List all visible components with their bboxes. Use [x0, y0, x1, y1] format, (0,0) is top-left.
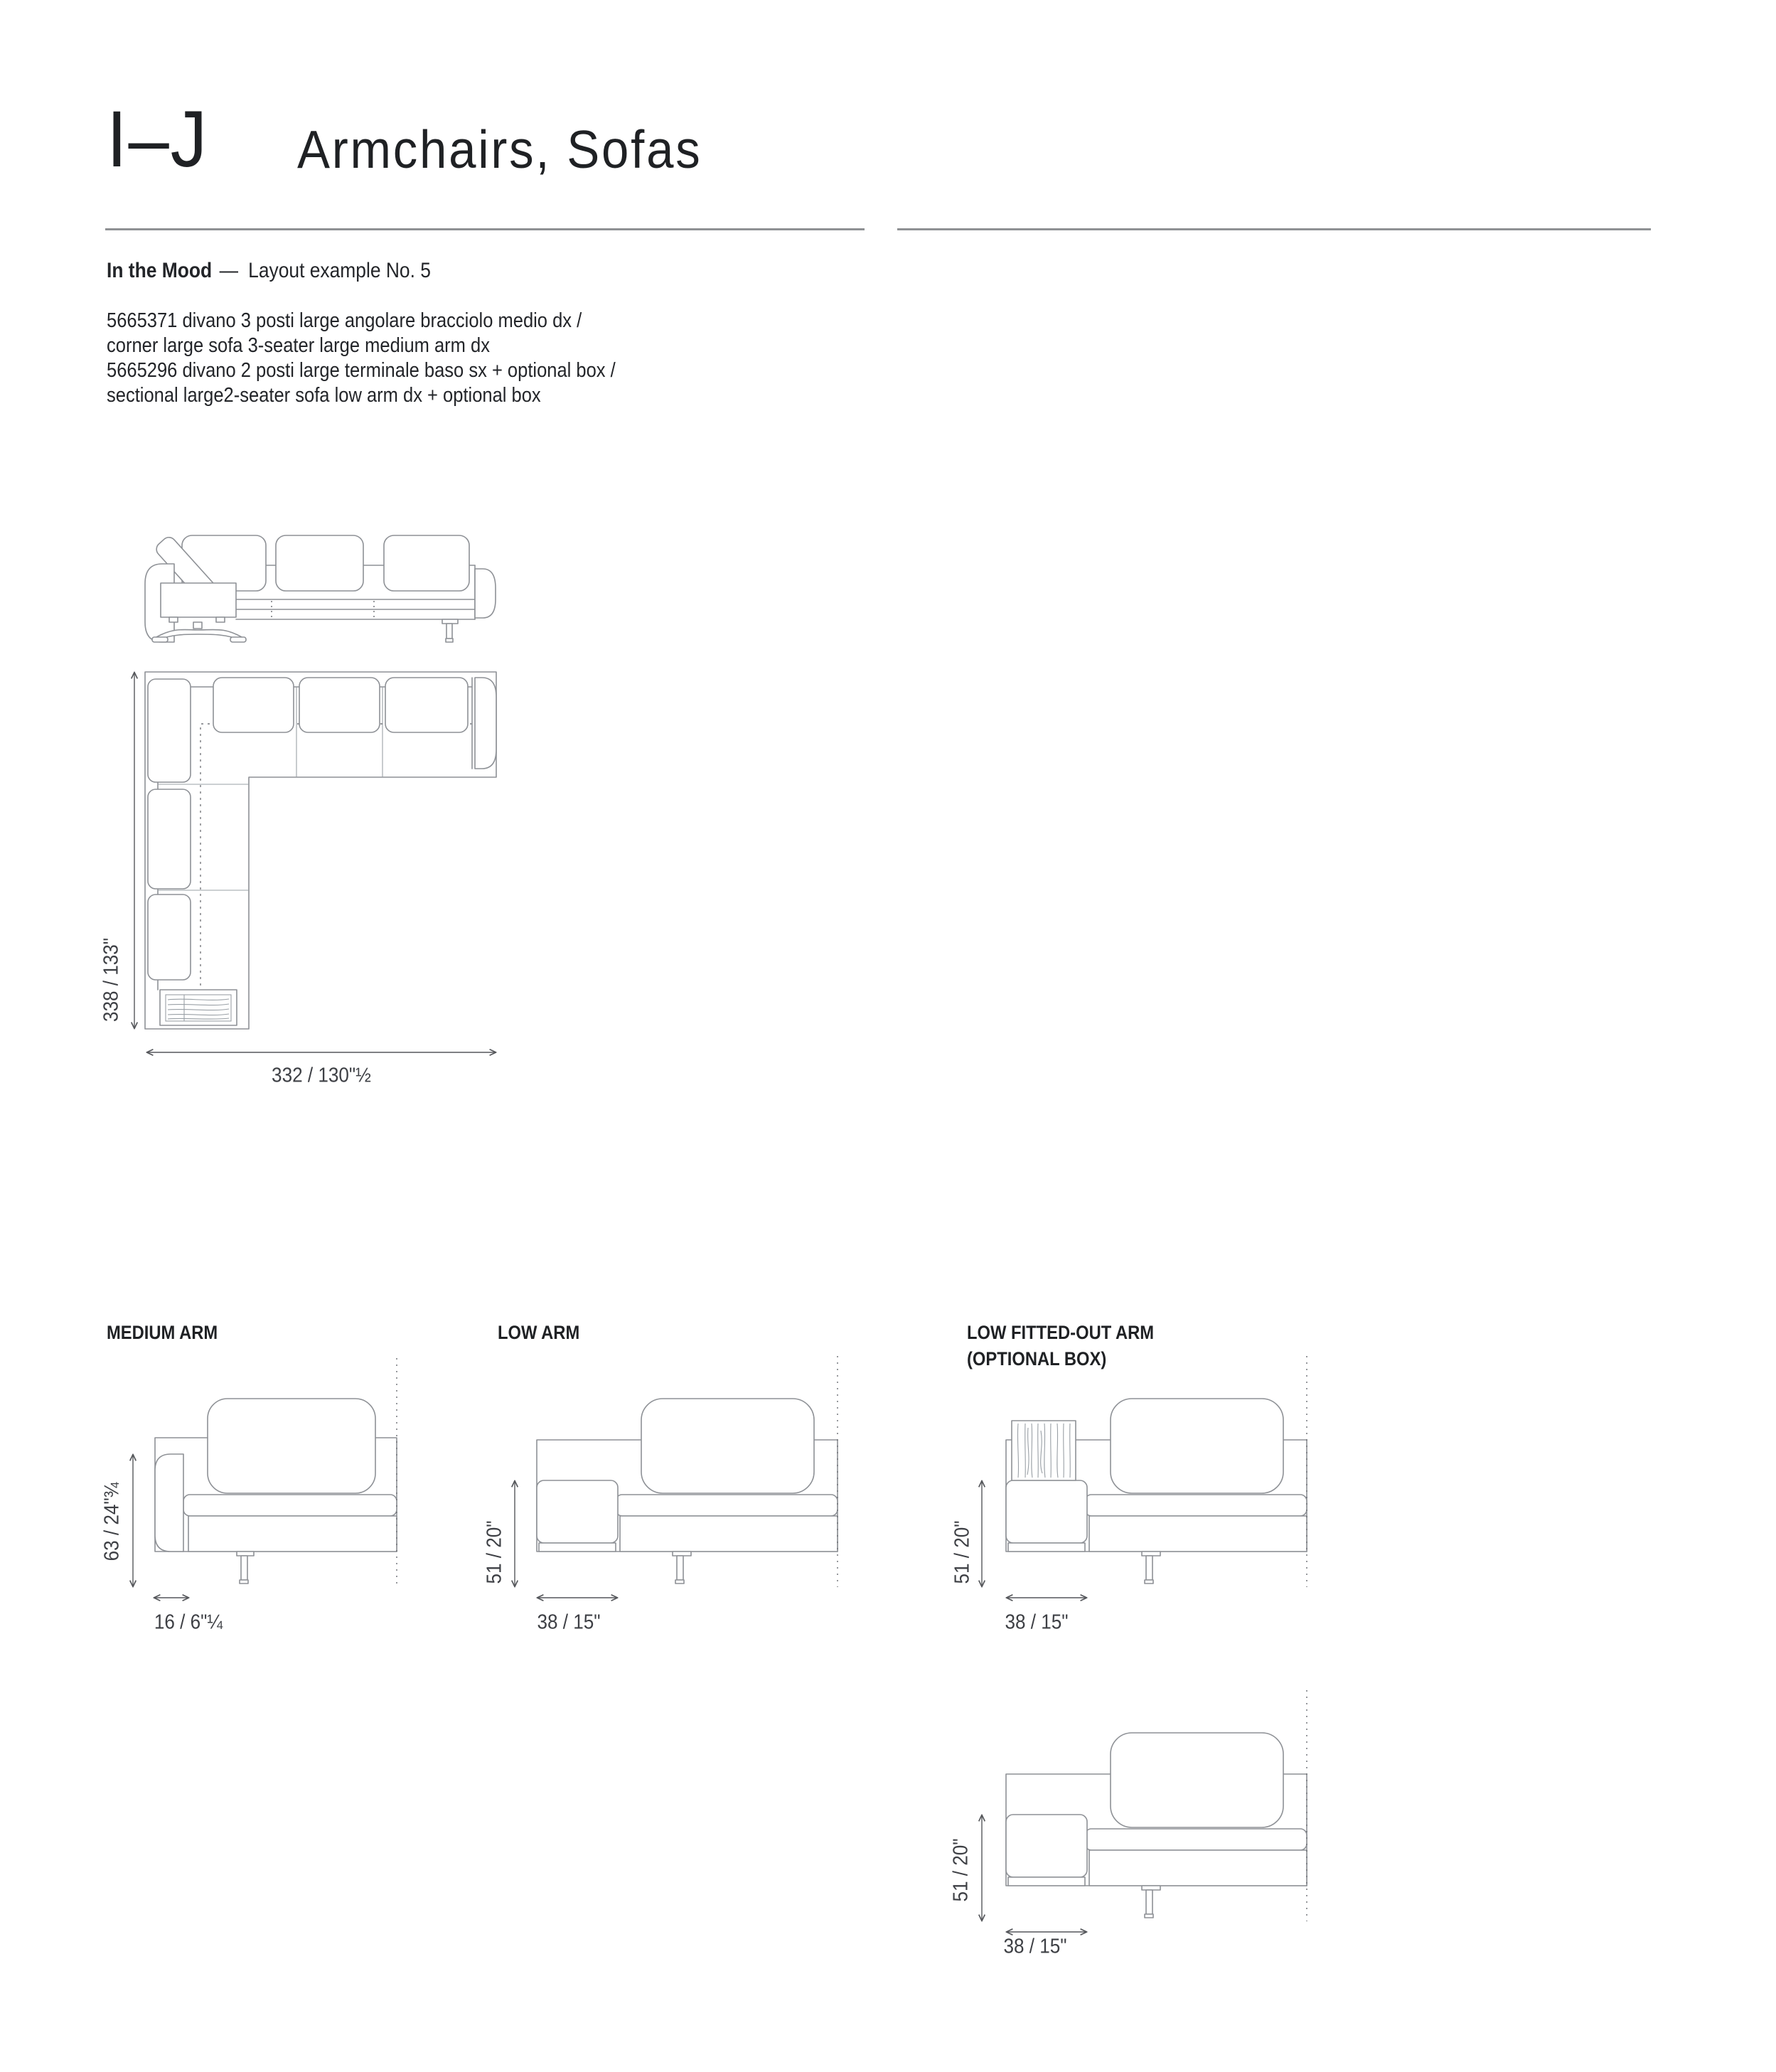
medium-arm	[155, 1454, 183, 1552]
plan-height-dimension: 338 / 133"	[100, 938, 124, 1022]
low-fitted-out-arm-drawing	[967, 1344, 1315, 1618]
box-foot	[216, 617, 225, 622]
product-line: 5665371 divano 3 posti large angolare br…	[107, 309, 685, 333]
section-index-text: I–J	[107, 100, 208, 179]
back-cushion	[208, 1399, 375, 1493]
leg	[237, 1552, 254, 1584]
optional-box-plan	[160, 990, 237, 1025]
back-cushion-plan	[148, 789, 191, 889]
series-line: In the Mood—Layout example No. 5	[107, 259, 475, 283]
seat-base	[188, 1516, 397, 1552]
layout-example-title: Layout example No. 5	[248, 259, 431, 282]
low-arm-module	[537, 1356, 838, 1587]
page-title: Armchairs, Sofas	[297, 121, 737, 178]
catalog-page: I–J Armchairs, Sofas In the Mood—Layout …	[0, 0, 1776, 2072]
low-arm-drawing	[498, 1344, 846, 1618]
sectional-low-arm-drawing	[967, 1678, 1315, 1952]
detail-label-medium-arm: MEDIUM ARM	[107, 1320, 232, 1346]
product-line: sectional large2-seater sofa low arm dx …	[107, 383, 685, 408]
sectional-low-arm-width-dimension: 38 / 15"	[1003, 1935, 1066, 1959]
optional-box	[1012, 1421, 1076, 1480]
product-line: 5665296 divano 2 posti large terminale b…	[107, 358, 685, 383]
back-cushion	[384, 535, 469, 591]
sofa-plan-drawing	[85, 668, 512, 1067]
seat-cushion	[183, 1495, 397, 1516]
section-index: I–J	[107, 100, 217, 179]
low-fitted-out-arm-width-dimension: 38 / 15"	[1005, 1611, 1068, 1635]
medium-arm-width-dimension: 16 / 6"¼	[154, 1611, 223, 1635]
medium-arm-height-dimension: 63 / 24"¾	[101, 1483, 124, 1561]
box-foot	[169, 617, 178, 622]
right-arm-plan	[475, 678, 496, 769]
back-cushion-plan	[385, 678, 468, 732]
low-arm-height-dimension: 51 / 20"	[483, 1520, 507, 1584]
product-description: 5665371 divano 3 posti large angolare br…	[107, 309, 685, 408]
page-title-text: Armchairs, Sofas	[297, 121, 702, 178]
header-rule-left	[105, 228, 865, 230]
plan-width-dimension: 332 / 130"½	[272, 1064, 371, 1088]
medium-arm-drawing	[107, 1344, 455, 1618]
low-fitted-out-arm-height-dimension: 51 / 20"	[951, 1520, 975, 1584]
detail-label-low-arm: LOW ARM	[498, 1320, 591, 1346]
product-line: corner large sofa 3-seater large medium …	[107, 333, 685, 358]
sofa-front-elevation-drawing	[135, 530, 501, 647]
series-name: In the Mood	[107, 259, 212, 282]
leg	[442, 619, 458, 642]
back-cushion	[276, 535, 363, 591]
back-cushion-plan	[148, 895, 191, 980]
series-separator: —	[220, 259, 238, 282]
low-arm-width-dimension: 38 / 15"	[537, 1611, 600, 1635]
low-arm-module	[1006, 1690, 1307, 1921]
corner-seat-box	[161, 583, 236, 617]
right-arm	[475, 569, 496, 618]
back-cushion-plan	[299, 678, 380, 732]
header-rule-right	[897, 228, 1651, 230]
back-cushion-plan	[213, 678, 294, 732]
sectional-low-arm-height-dimension: 51 / 20"	[950, 1838, 973, 1901]
back-cushion-plan	[148, 679, 191, 782]
